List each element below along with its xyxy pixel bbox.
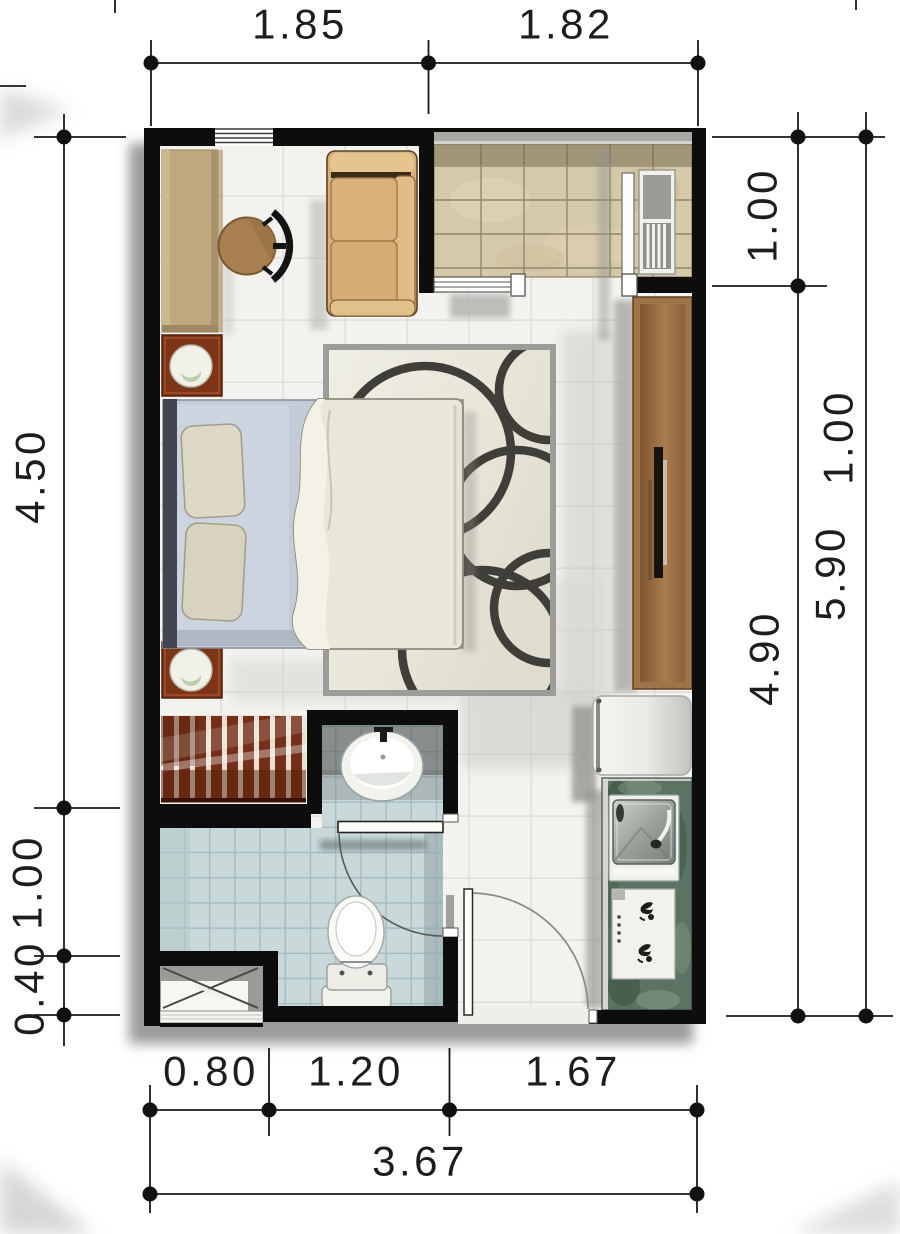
svg-text:1.67: 1.67 [525,1048,621,1095]
svg-text:1.00: 1.00 [815,389,862,485]
svg-text:1.20: 1.20 [308,1048,404,1095]
svg-text:5.90: 5.90 [807,525,854,621]
svg-text:1.82: 1.82 [518,1,614,48]
svg-text:0.80: 0.80 [163,1048,259,1095]
svg-text:4.90: 4.90 [741,610,788,706]
svg-text:0.40: 0.40 [6,940,53,1036]
svg-text:3.67: 3.67 [372,1138,468,1185]
svg-text:1.00: 1.00 [4,834,51,930]
svg-text:1.85: 1.85 [252,1,348,48]
svg-text:4.50: 4.50 [7,428,54,524]
svg-text:1.00: 1.00 [739,167,786,263]
